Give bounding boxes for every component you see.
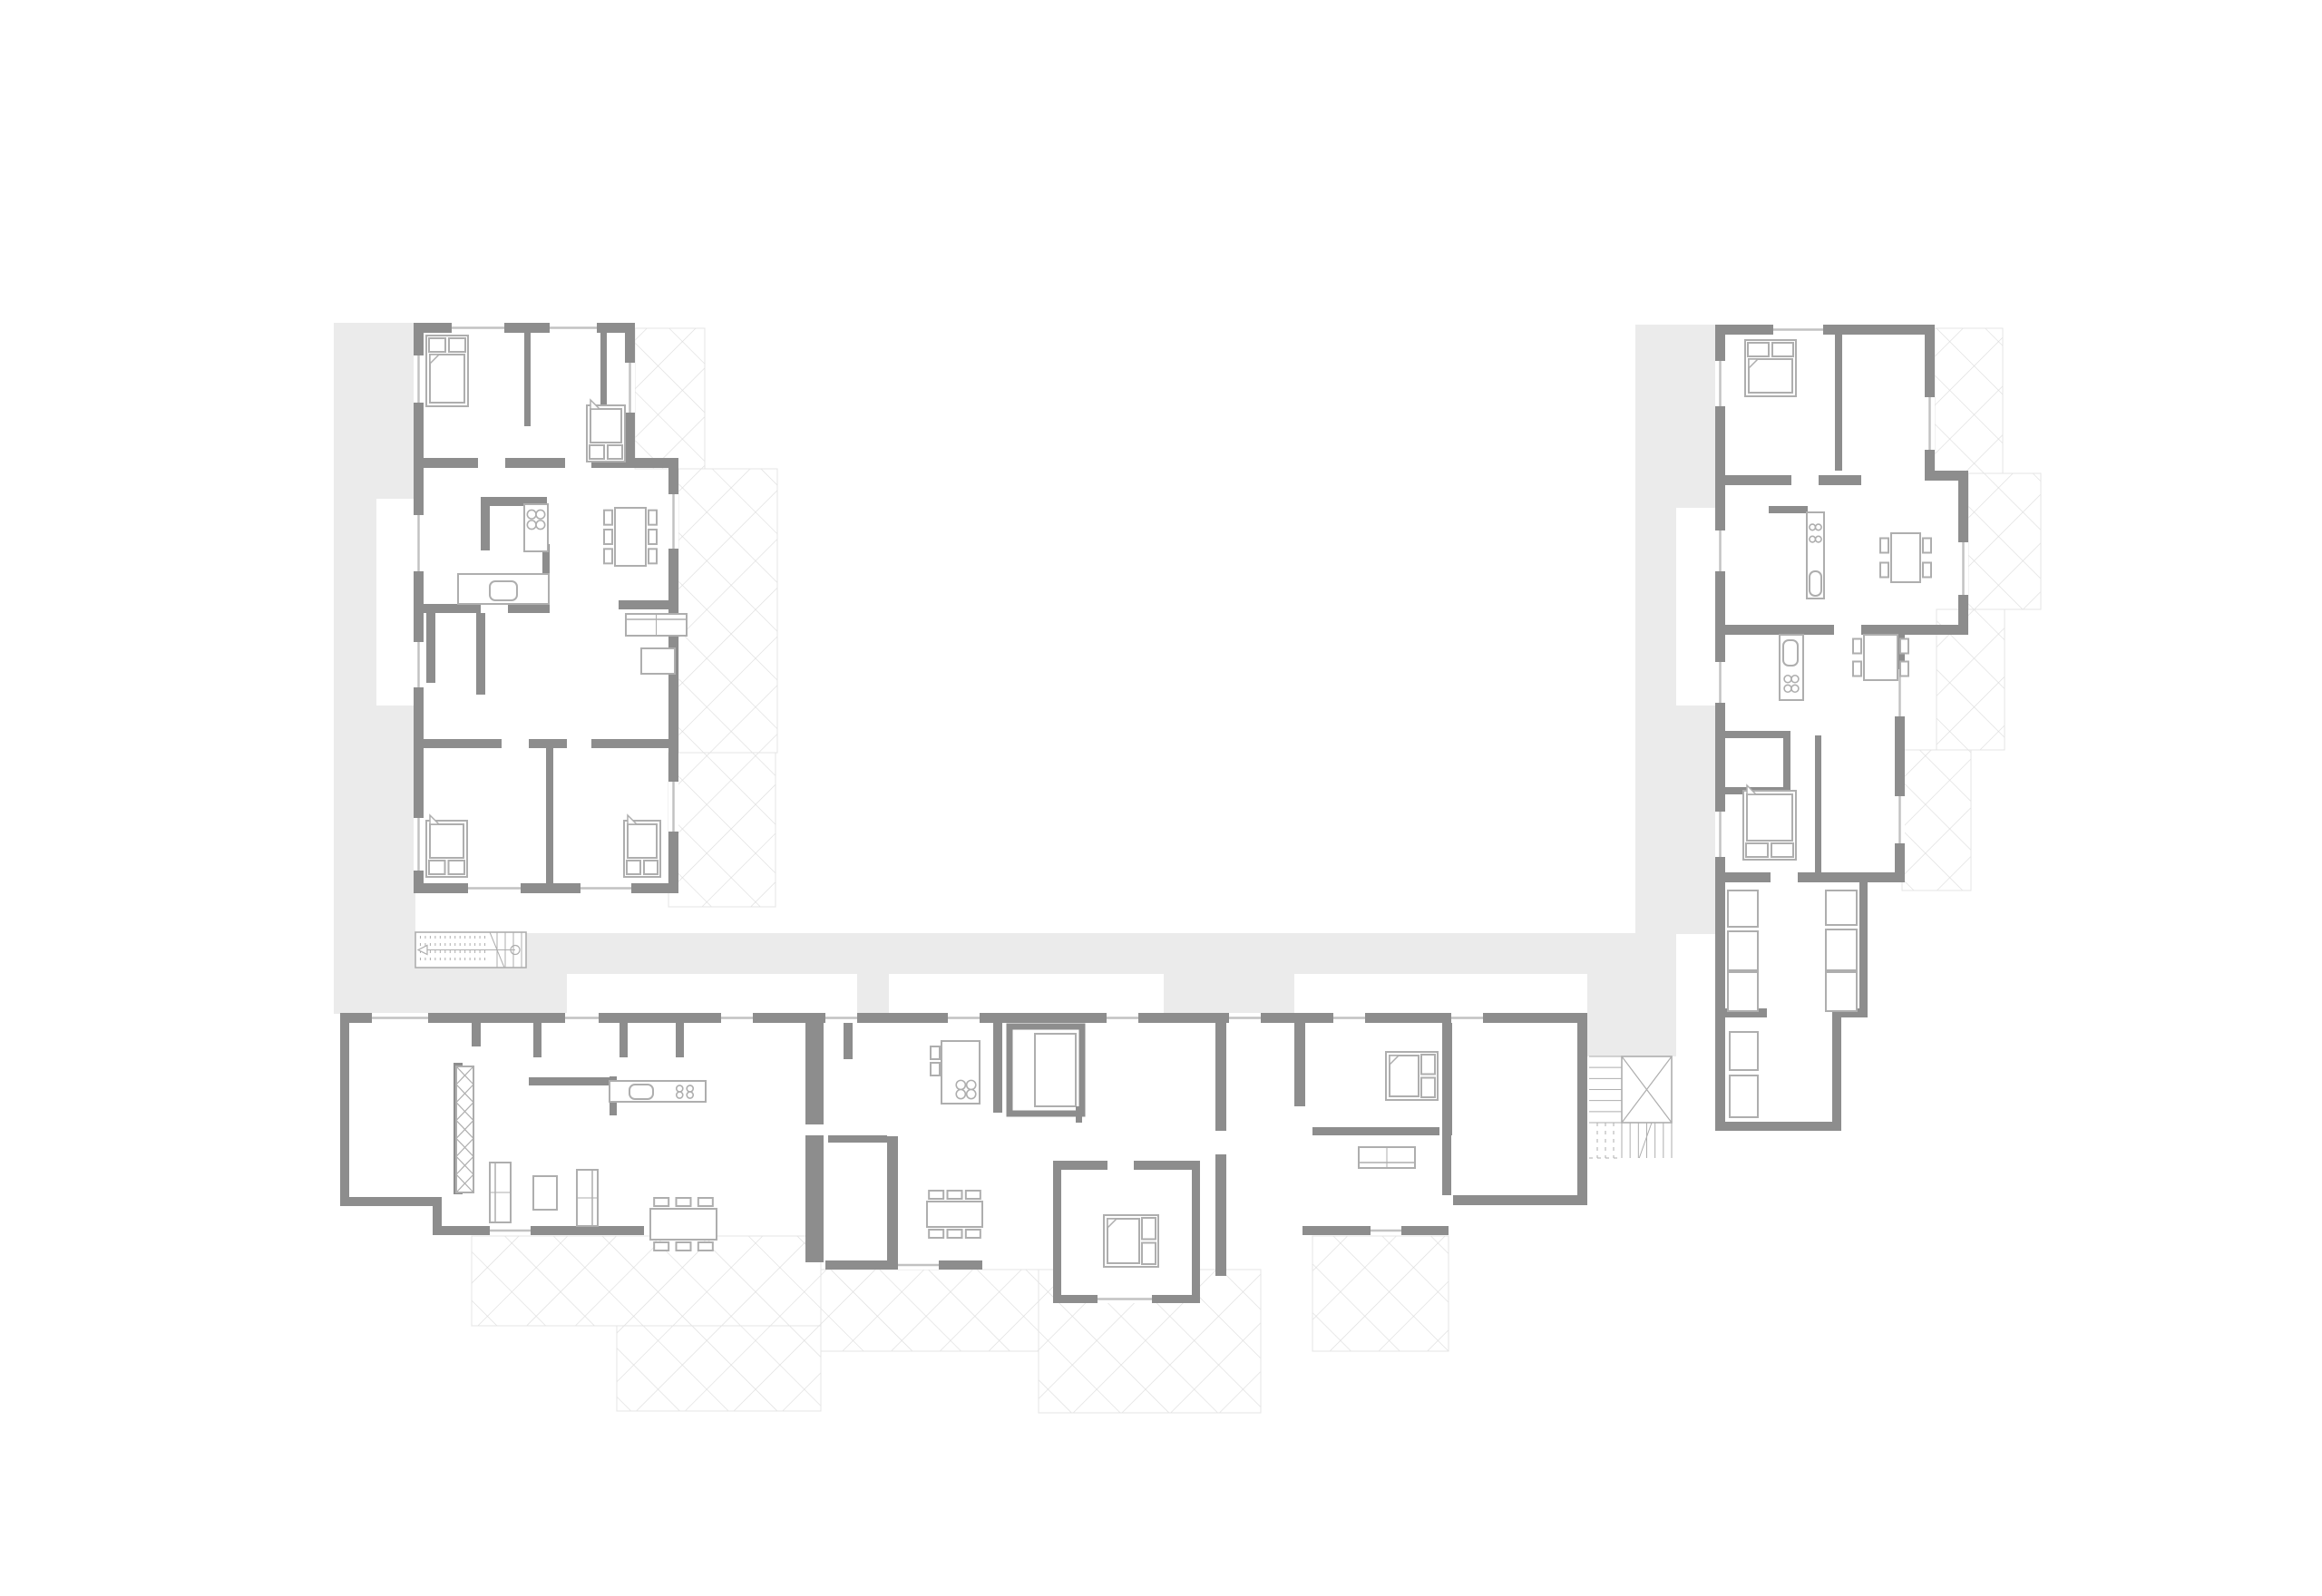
stove-burner [1791,685,1799,692]
chair [1900,639,1908,654]
stove-burner [956,1090,965,1099]
stove-burner [1784,676,1791,683]
chair [1923,563,1931,578]
chair [966,1230,981,1238]
pillow [429,338,445,352]
wall [1725,625,1834,635]
wall [546,748,553,884]
sofa [490,1163,511,1222]
floor-plan [0,0,2322,1596]
stove-burner [677,1092,683,1098]
terrace-hatch [1312,1236,1449,1351]
sofa [577,1170,598,1226]
wall [476,613,485,695]
dining-table [650,1209,717,1240]
stove-burner [687,1085,693,1092]
stove-burner [536,510,545,519]
wall [472,1023,481,1046]
terrace-hatch [821,1270,1039,1351]
chair [698,1242,713,1251]
sink [490,581,517,600]
wall [1783,731,1790,794]
pillow [627,861,640,874]
sofa [1359,1147,1415,1168]
stove-burner [1816,524,1822,530]
bath-core-inner [1035,1034,1076,1106]
wall [505,458,565,468]
storage-box [1826,890,1857,925]
sink [1783,640,1798,666]
wall [1715,325,1935,335]
wall [1798,872,1905,882]
chair [698,1198,713,1206]
sink [1810,571,1821,596]
wall [1401,1226,1449,1235]
wall [1294,1023,1305,1106]
stove-burner [1816,536,1822,542]
storage-box [1728,890,1758,927]
stove-burner [1810,524,1816,530]
wall [1215,1154,1226,1276]
chair [1880,539,1888,553]
terrace-hatch [1968,473,2041,609]
wall [426,613,435,683]
wall [805,1135,824,1262]
wall [1215,1023,1226,1131]
sideboard [641,648,675,674]
chair [654,1242,668,1251]
wall [424,458,478,468]
chair [604,549,612,563]
wall [1815,735,1821,882]
island-chair [931,1063,940,1075]
pillow [429,861,445,874]
courtyard-cutout [1294,974,1587,1014]
chair [1923,539,1931,553]
island-chair [931,1046,940,1059]
wall [424,739,502,748]
wall [1453,1195,1587,1205]
courtyard-cutout [376,499,415,706]
pillow [644,861,658,874]
pillow [1421,1055,1435,1075]
wall [993,1023,1002,1113]
stove-burner [1784,685,1791,692]
wall [887,1136,898,1263]
chair [948,1191,962,1199]
storage-box [1826,929,1857,970]
dining-table-group [604,508,657,566]
mattress [430,355,464,403]
bed [426,815,467,877]
wall [1442,1023,1452,1135]
wall [939,1260,982,1270]
wardrobe [456,1066,473,1192]
chair [966,1191,981,1199]
dining-table [615,508,646,566]
wall [825,1260,898,1270]
wall [620,1023,628,1057]
storage-box [1730,1075,1758,1117]
dining-table [1891,533,1920,582]
storage-box [1728,972,1758,1011]
pillow [1142,1243,1156,1265]
stove-burner [1810,536,1816,542]
wall [533,1023,541,1057]
pillow [1771,843,1793,857]
wall [1715,1122,1841,1131]
stove-burner [677,1085,683,1092]
wall [1312,1127,1439,1135]
stove-burner [527,510,536,519]
terrace-hatch [668,753,776,907]
wall [844,1023,853,1059]
bed [624,815,660,877]
chair [649,511,657,525]
chair [677,1198,691,1206]
bed [1386,1052,1438,1100]
mattress [1107,1219,1139,1263]
bed [587,400,625,462]
terrace-hatch [1935,328,2003,473]
chair [948,1230,962,1238]
pillow [1746,843,1768,857]
chair [929,1230,943,1238]
wall [414,323,424,893]
mattress [1747,794,1792,841]
stove-burner [536,521,545,530]
wall [424,604,481,613]
pillow [590,445,604,459]
wall [414,323,635,333]
storage-box [1728,931,1758,970]
coffee-table [533,1176,557,1210]
chair [649,530,657,544]
floor-plan-svg [0,0,2322,1596]
chair [604,530,612,544]
wall [524,333,531,426]
wall [619,600,678,609]
terrace-hatch [1902,750,1971,890]
stove-burner [967,1090,976,1099]
wall [1835,335,1842,471]
pillow [449,861,465,874]
wall [1769,506,1808,513]
wall [414,883,678,893]
storage-box [1730,1032,1758,1070]
wall [1859,882,1868,1017]
wall [1722,731,1789,738]
stove-burner [1791,676,1799,683]
wall [1861,625,1895,635]
wall [1725,475,1791,485]
pillow [1772,343,1793,356]
stove-burner [687,1092,693,1098]
dining-table-group [650,1198,717,1251]
chair [677,1242,691,1251]
staircase-straight [415,932,526,968]
chair [1853,639,1861,654]
pillow [449,338,465,352]
bed [1745,340,1796,396]
wall [529,1077,610,1085]
bath-core-stub [1076,1106,1082,1123]
pillow [1142,1218,1156,1240]
chair [604,511,612,525]
wall [433,1226,644,1235]
chair [929,1191,943,1199]
courtyard-area [1587,1014,1676,1056]
stove-burner [956,1080,965,1089]
chair [1900,662,1908,676]
chair [1880,563,1888,578]
terrace-hatch [635,328,705,469]
sofa [626,614,687,636]
wall [805,1023,824,1124]
chair [654,1198,668,1206]
courtyard-cutout [1676,508,1715,706]
sink [629,1085,653,1099]
mattress [590,409,621,443]
wall [1895,625,1968,635]
wall [529,739,567,748]
wall [481,497,490,550]
mattress [1390,1056,1419,1096]
wall [1832,1008,1841,1131]
wall [1192,1161,1200,1303]
wall [1442,1131,1451,1195]
wall [1302,1226,1371,1235]
wall [1053,1161,1061,1303]
mattress [628,824,657,858]
wall [1577,1013,1587,1205]
mattress [430,824,463,858]
pillow [1748,343,1769,356]
bed [426,336,468,406]
wall [676,1023,684,1057]
storage-box [1826,972,1857,1011]
dining-table-group [927,1191,982,1238]
wall [591,739,671,748]
pillow [608,445,622,459]
wall [828,1135,887,1143]
bed [1743,785,1796,860]
bed [1104,1215,1158,1267]
wall [1715,872,1771,882]
stove-burner [967,1080,976,1089]
wall [1819,475,1861,485]
terrace-hatch [472,1236,821,1326]
dining-table [927,1202,982,1227]
chair [649,549,657,563]
pillow [1421,1078,1435,1098]
stove-burner [527,521,536,530]
wall [340,1013,349,1206]
courtyard-cutout [889,974,1164,1014]
wall [1134,1161,1200,1170]
terrace-hatch [678,469,777,753]
mattress [1749,359,1792,393]
wall [340,1197,442,1206]
courtyard-cutout [567,974,857,1014]
dining-table [1864,635,1898,680]
terrace-hatch [617,1326,821,1411]
chair [1853,662,1861,676]
